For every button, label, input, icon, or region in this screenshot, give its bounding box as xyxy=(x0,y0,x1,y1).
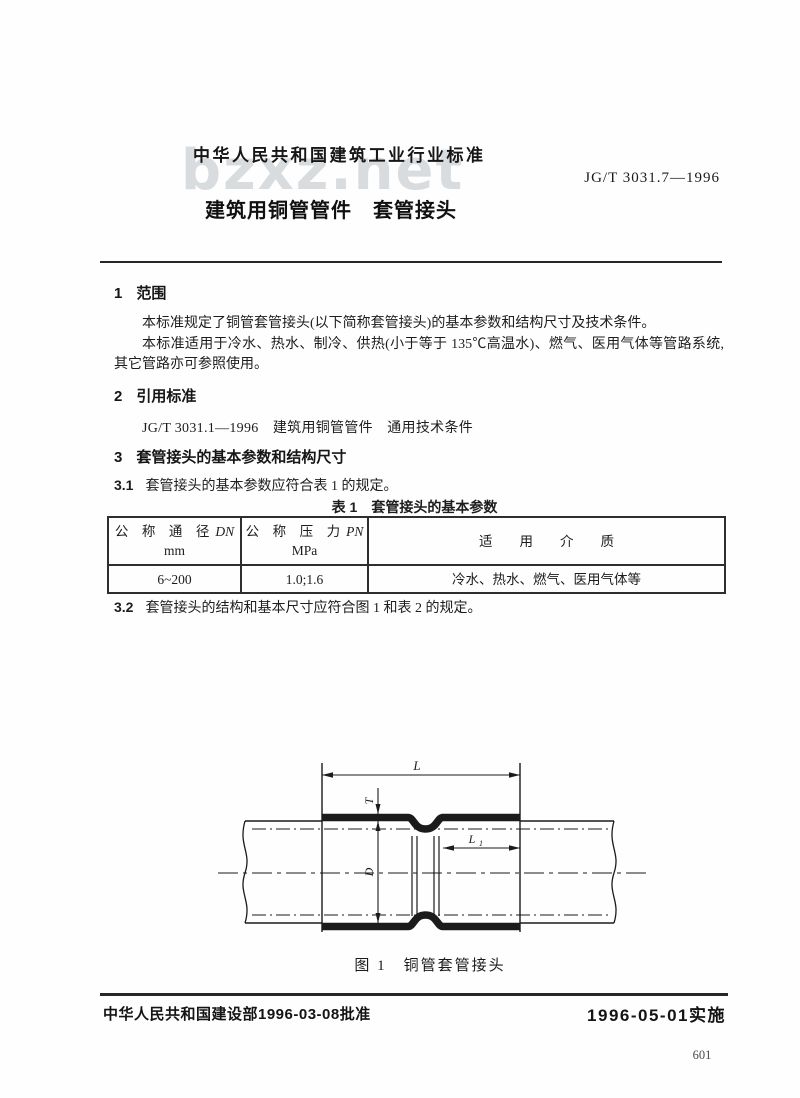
label-L1-subscript: 1 xyxy=(479,839,483,848)
dn-symbol: DN xyxy=(215,524,234,539)
right-break-line xyxy=(612,821,616,923)
section-1-number: 1 xyxy=(114,285,122,302)
document-title: 建筑用铜管管件 套管接头 xyxy=(205,194,457,223)
standard-class-line: 中华人民共和国建筑工业行业标准 xyxy=(193,141,486,166)
header-divider xyxy=(100,261,722,263)
approval-line: 中华人民共和国建设部1996-03-08批准 xyxy=(103,1003,371,1024)
section-2-title: 引用标准 xyxy=(136,388,196,405)
section-1-title: 范围 xyxy=(136,285,166,302)
pn-value-cell: 1.0;1.6 xyxy=(242,566,369,592)
left-break-line xyxy=(243,821,247,923)
column-header-dn: 公 称 通 径DN mm xyxy=(109,518,242,564)
pn-header-label: 公 称 压 力 xyxy=(246,524,341,539)
media-header-label: 适 用 介 质 xyxy=(479,532,614,551)
document-page: bzxz.net 中华人民共和国建筑工业行业标准 JG/T 3031.7—199… xyxy=(0,0,800,1098)
column-header-media: 适 用 介 质 xyxy=(369,518,724,564)
scope-paragraph-1: 本标准规定了铜管套管接头(以下简称套管接头)的基本参数和结构尺寸及技术条件。 xyxy=(114,314,724,335)
column-header-pn: 公 称 压 力PN MPa xyxy=(242,518,369,564)
pn-unit: MPa xyxy=(292,541,318,560)
clause-3-2-text: 套管接头的结构和基本尺寸应符合图 1 和表 2 的规定。 xyxy=(145,601,481,616)
clause-3-1-text: 套管接头的基本参数应符合表 1 的规定。 xyxy=(145,479,397,494)
implementation-line: 1996-05-01实施 xyxy=(460,1001,726,1026)
pipe-end-faces xyxy=(412,836,439,916)
table-1-header-row: 公 称 通 径DN mm 公 称 压 力PN MPa 适 用 介 质 xyxy=(109,518,724,566)
label-T: T xyxy=(362,796,376,804)
section-1-heading: 1范围 xyxy=(114,282,166,303)
page-number: 601 xyxy=(682,1048,722,1063)
dn-unit: mm xyxy=(164,541,185,560)
sleeve-top-wall xyxy=(322,818,520,830)
table-1-title: 表 1 套管接头的基本参数 xyxy=(107,497,722,517)
clause-3-1-number: 3.1 xyxy=(114,477,133,493)
footer-divider xyxy=(100,993,728,996)
table-1: 公 称 通 径DN mm 公 称 压 力PN MPa 适 用 介 质 6~200… xyxy=(107,516,726,594)
dn-header-label: 公 称 通 径 xyxy=(115,524,210,539)
pn-symbol: PN xyxy=(346,524,363,539)
section-2-heading: 2引用标准 xyxy=(114,385,196,406)
clause-3-1: 3.1套管接头的基本参数应符合表 1 的规定。 xyxy=(114,475,724,495)
clause-3-2-number: 3.2 xyxy=(114,599,133,615)
dn-value-cell: 6~200 xyxy=(109,566,242,592)
sleeve-bottom-wall xyxy=(322,915,520,927)
referenced-standard-line: JG/T 3031.1—1996 建筑用铜管管件 通用技术条件 xyxy=(142,417,473,437)
table-1-data-row: 6~200 1.0;1.6 冷水、热水、燃气、医用气体等 xyxy=(109,566,724,592)
label-L: L xyxy=(412,758,420,773)
figure-1-drawing: L T D L 1 xyxy=(180,740,680,960)
section-3-heading: 3套管接头的基本参数和结构尺寸 xyxy=(114,446,346,467)
standard-number: JG/T 3031.7—1996 xyxy=(490,170,720,187)
label-D: D xyxy=(362,867,376,877)
section-2-number: 2 xyxy=(114,388,122,405)
scope-paragraph-2: 本标准适用于冷水、热水、制冷、供热(小于等于 135℃高温水)、燃气、医用气体等… xyxy=(114,335,724,376)
section-1-body: 本标准规定了铜管套管接头(以下简称套管接头)的基本参数和结构尺寸及技术条件。 本… xyxy=(114,314,724,376)
figure-1-caption: 图 1 铜管套管接头 xyxy=(180,954,680,975)
clause-3-2: 3.2套管接头的结构和基本尺寸应符合图 1 和表 2 的规定。 xyxy=(114,597,724,617)
section-3-title: 套管接头的基本参数和结构尺寸 xyxy=(136,449,346,466)
section-3-number: 3 xyxy=(114,449,122,466)
label-L1: L xyxy=(468,832,476,846)
media-value-cell: 冷水、热水、燃气、医用气体等 xyxy=(369,566,724,592)
